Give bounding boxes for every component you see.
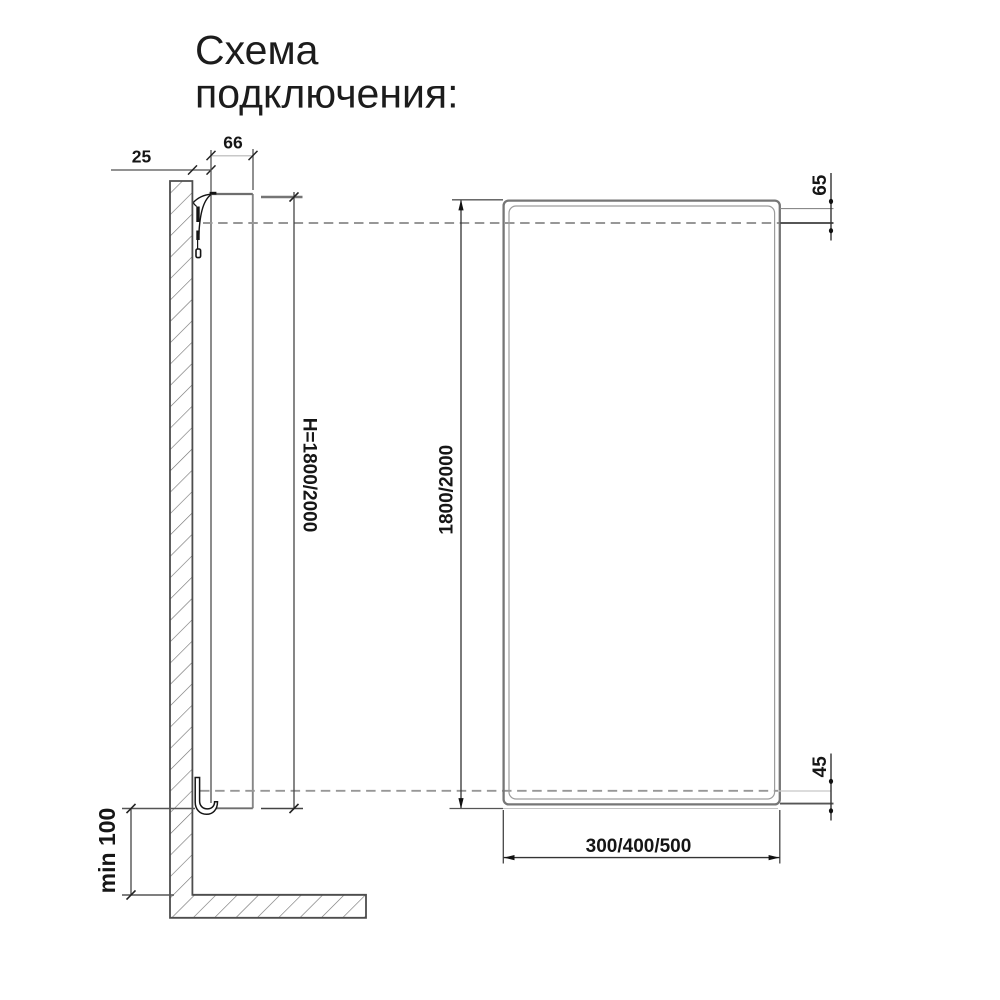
svg-text:1800/2000: 1800/2000 [437, 445, 458, 535]
svg-text:65: 65 [810, 174, 831, 196]
svg-text:300/400/500: 300/400/500 [586, 836, 692, 857]
svg-text:Схема: Схема [195, 27, 319, 73]
svg-text:H=1800/2000: H=1800/2000 [299, 418, 320, 533]
svg-text:min 100: min 100 [94, 808, 120, 894]
svg-text:45: 45 [810, 756, 831, 778]
svg-text:66: 66 [223, 133, 243, 153]
svg-text:подключения:: подключения: [195, 71, 459, 117]
svg-text:25: 25 [132, 147, 152, 167]
